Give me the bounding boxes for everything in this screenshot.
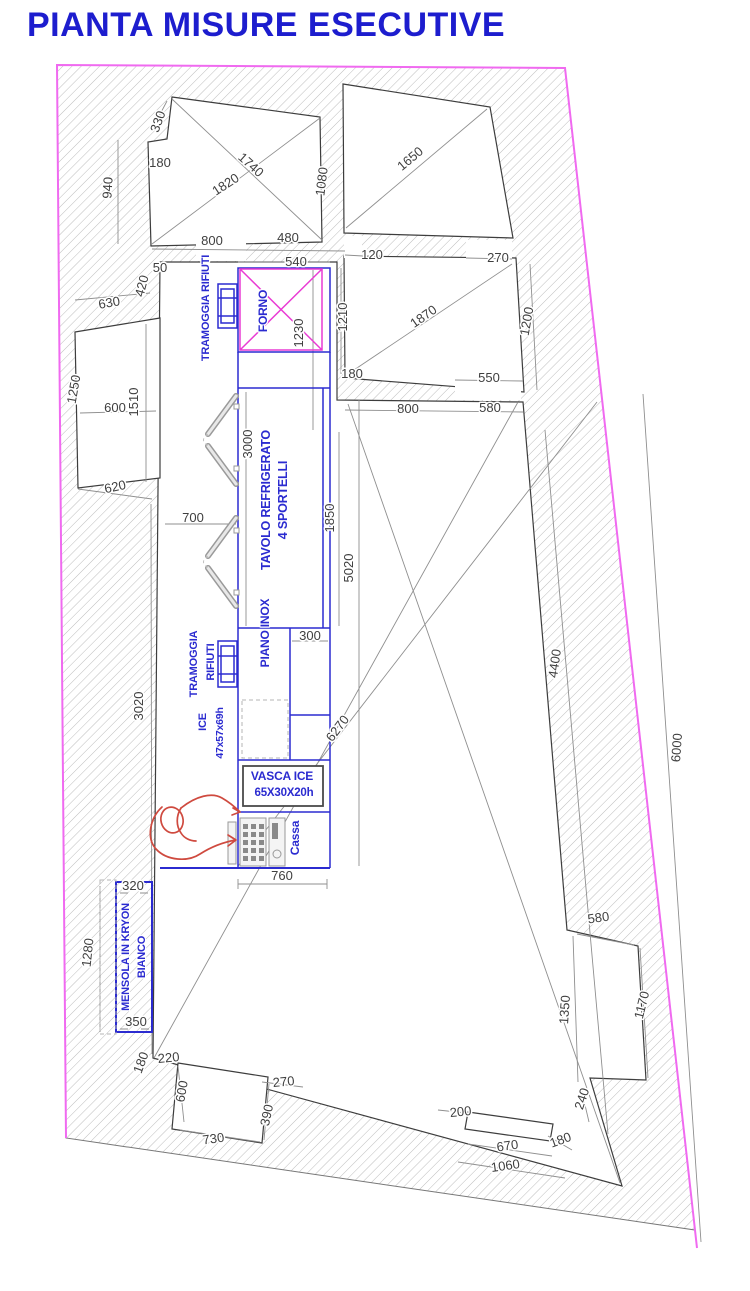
dimension-label: 480 bbox=[277, 230, 299, 245]
dimension-label: 200 bbox=[449, 1103, 472, 1120]
dimension-label: 3020 bbox=[131, 692, 146, 721]
room-top-left bbox=[148, 97, 322, 246]
dimension-label: 300 bbox=[299, 628, 321, 643]
dimension-label: 1510 bbox=[126, 388, 141, 417]
dimension-label: 5020 bbox=[341, 554, 356, 583]
equipment-label: TRAMOGGIA RIFIUTI bbox=[200, 255, 212, 361]
dimension-label: 600 bbox=[104, 400, 126, 415]
dimension-label: 760 bbox=[271, 868, 293, 883]
dimension-label: 700 bbox=[182, 510, 204, 525]
equipment-label: MENSOLA IN KRYON bbox=[120, 903, 132, 1011]
dimension-label: 1210 bbox=[335, 303, 350, 332]
dimension-label: 180 bbox=[341, 366, 363, 381]
equipment-label: VASCA ICE bbox=[251, 769, 313, 783]
equipment-label: RIFIUTI bbox=[205, 643, 217, 680]
equipment-label: FORNO bbox=[256, 290, 270, 332]
room-top-right bbox=[343, 84, 513, 238]
register-display bbox=[272, 823, 278, 839]
dimension-label: 3000 bbox=[240, 430, 255, 459]
dimension-label: 730 bbox=[202, 1130, 226, 1148]
equipment-label: TAVOLO REFRIGERATO bbox=[259, 430, 273, 570]
equipment-label: 47x57x69h bbox=[214, 707, 226, 758]
floor-plan-page: PIANTA MISURE ESECUTIVE bbox=[0, 0, 750, 1291]
dimension-label: 540 bbox=[285, 254, 307, 269]
dimension-label: 1280 bbox=[79, 937, 97, 967]
dimension-label: 580 bbox=[587, 909, 611, 927]
dimension-label: 800 bbox=[201, 233, 223, 248]
dimension-label: 270 bbox=[272, 1073, 295, 1090]
dimension-label: 320 bbox=[122, 878, 144, 893]
equipment-label: Cassa bbox=[288, 820, 302, 855]
dimension-label: 50 bbox=[153, 260, 167, 275]
equipment-label: PIANO INOX bbox=[258, 598, 272, 667]
equipment-label: BIANCO bbox=[136, 935, 148, 978]
dimension-label: 180 bbox=[149, 155, 171, 170]
dimension-label: 800 bbox=[397, 401, 419, 416]
equipment-label: TRAMOGGIA bbox=[188, 630, 200, 697]
dimension-label: 940 bbox=[99, 177, 115, 199]
dimension-label: 1230 bbox=[291, 319, 306, 348]
dimension-label: 6000 bbox=[668, 733, 685, 763]
dimension-label: 270 bbox=[487, 250, 509, 265]
equipment-label: 4 SPORTELLI bbox=[276, 461, 290, 539]
equipment-label: 65X30X20h bbox=[255, 787, 314, 799]
floor-plan-drawing: 3301809401740182010808004801650120270504… bbox=[0, 0, 750, 1291]
dimension-label: 670 bbox=[496, 1137, 520, 1155]
dimension-label: 120 bbox=[361, 247, 383, 262]
dimension-label: 1850 bbox=[322, 504, 337, 533]
dimension-label: 220 bbox=[157, 1049, 180, 1066]
dimension-label: 1350 bbox=[556, 995, 573, 1025]
dimension-label: 550 bbox=[478, 370, 500, 385]
equipment-label: ICE bbox=[197, 713, 209, 731]
dimension-label: 580 bbox=[479, 400, 501, 415]
dimension-label: 350 bbox=[125, 1014, 147, 1029]
